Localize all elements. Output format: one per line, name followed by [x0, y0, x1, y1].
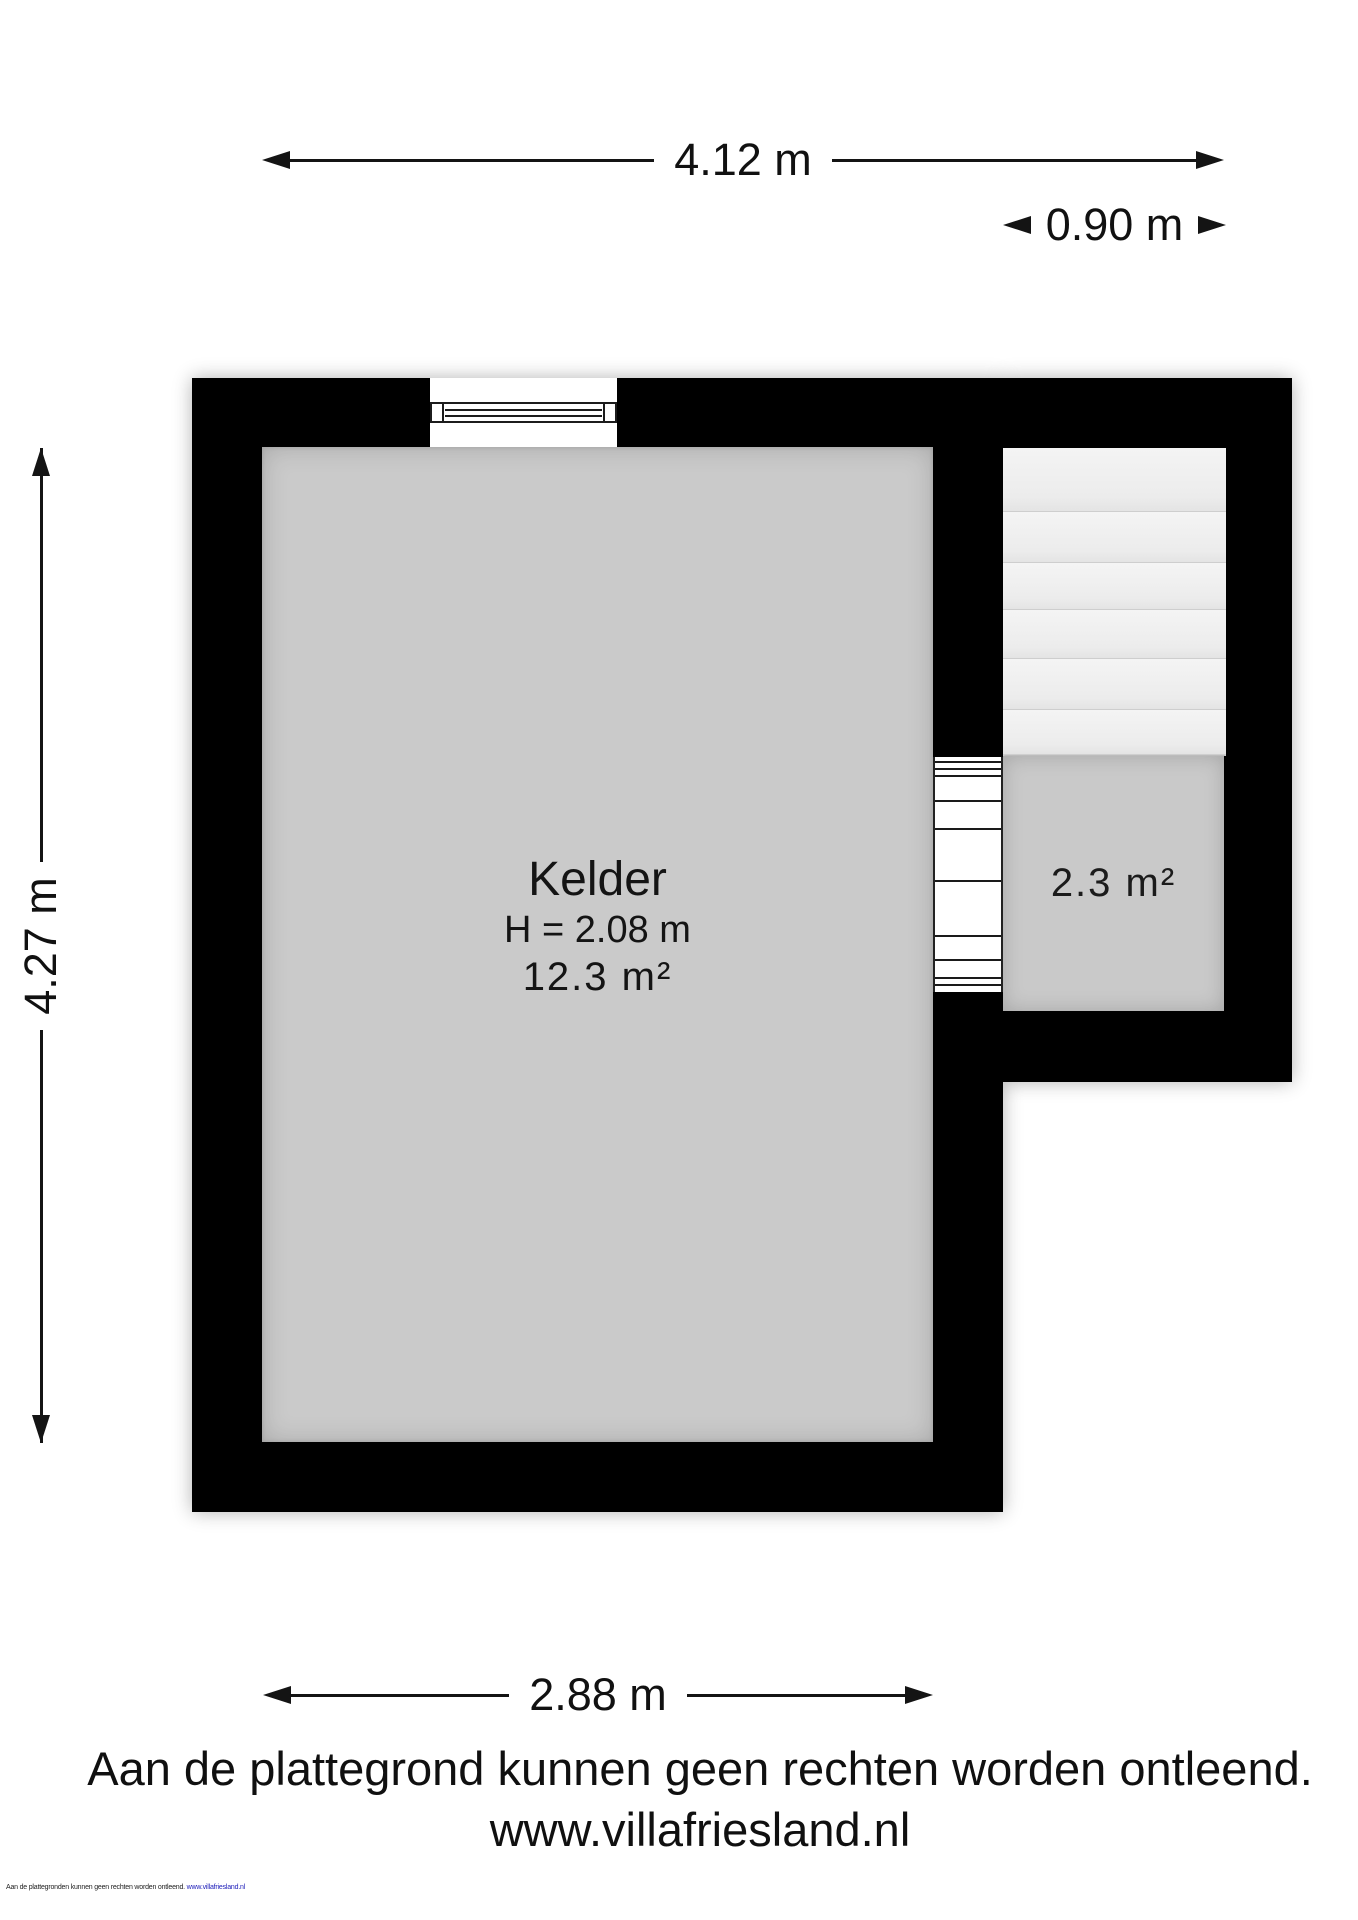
stair-tread: [1003, 710, 1226, 755]
arrow-right-icon: [1196, 151, 1224, 169]
window-jamb-right: [603, 404, 615, 421]
room-area: 2.3 m²: [1051, 861, 1176, 906]
step-line: [935, 800, 1001, 802]
arrow-left-icon: [263, 1686, 291, 1704]
dimension-line: [40, 448, 43, 862]
footer-disclaimer: Aan de plattegrond kunnen geen rechten w…: [42, 1738, 1358, 1799]
fine-print: Aan de plattegronden kunnen geen rechten…: [6, 1884, 245, 1891]
window-icon: [430, 402, 617, 423]
fine-print-text: Aan de plattegronden kunnen geen rechten…: [6, 1884, 185, 1891]
window-pane-line: [445, 415, 602, 417]
stair-tread: [1003, 610, 1226, 659]
room-area: 12.3 m²: [262, 953, 933, 1001]
stair-tread: [1003, 448, 1226, 512]
dimension-bottom-label: 2.88 m: [509, 1669, 687, 1721]
step-line: [935, 775, 1001, 777]
dimension-line: [832, 159, 1196, 162]
dimension-stair-label: 0.90 m: [1038, 199, 1192, 251]
dimension-line: [291, 1694, 509, 1697]
window-pane-line: [445, 409, 602, 411]
staircase: [1003, 448, 1226, 756]
room-kelder-labels: Kelder H = 2.08 m 12.3 m²: [262, 853, 933, 1001]
room-ceiling-height: H = 2.08 m: [262, 907, 933, 953]
room-name: Kelder: [262, 853, 933, 907]
dimension-left-label: 4.27 m: [15, 877, 67, 1015]
window-jamb-left: [432, 404, 444, 421]
dimension-line: [40, 1030, 43, 1443]
step-line: [935, 880, 1001, 882]
step-line: [935, 935, 1001, 937]
arrow-down-icon: [32, 1415, 50, 1443]
dimension-bottom-width: 2.88 m: [263, 1667, 933, 1723]
stair-tread: [1003, 512, 1226, 563]
step-line: [935, 977, 1001, 979]
dimension-top-label: 4.12 m: [654, 134, 832, 186]
step-line: [935, 761, 1001, 763]
wall-opening-steps: [933, 757, 1003, 992]
dimension-line: [290, 159, 654, 162]
footer: Aan de plattegrond kunnen geen rechten w…: [0, 1738, 1358, 1860]
step-line: [935, 768, 1001, 770]
step-line: [935, 828, 1001, 830]
arrow-right-icon: [905, 1686, 933, 1704]
stair-tread: [1003, 659, 1226, 710]
stair-tread: [1003, 563, 1226, 610]
arrow-left-icon: [262, 151, 290, 169]
step-line: [935, 984, 1001, 986]
floorplan-canvas: 4.12 m 0.90 m 4.27 m Kelder H = 2.08 m 1…: [0, 0, 1358, 1920]
room-stair-floor: 2.3 m²: [1003, 756, 1224, 1011]
dimension-stair-width: 0.90 m: [1003, 197, 1226, 253]
footer-website: www.villafriesland.nl: [42, 1799, 1358, 1860]
arrow-right-icon: [1198, 216, 1226, 234]
arrow-left-icon: [1003, 216, 1031, 234]
dimension-line: [687, 1694, 905, 1697]
fine-print-website: www.villafriesland.nl: [187, 1884, 245, 1891]
step-line: [935, 959, 1001, 961]
dimension-top-width: 4.12 m: [262, 132, 1224, 188]
